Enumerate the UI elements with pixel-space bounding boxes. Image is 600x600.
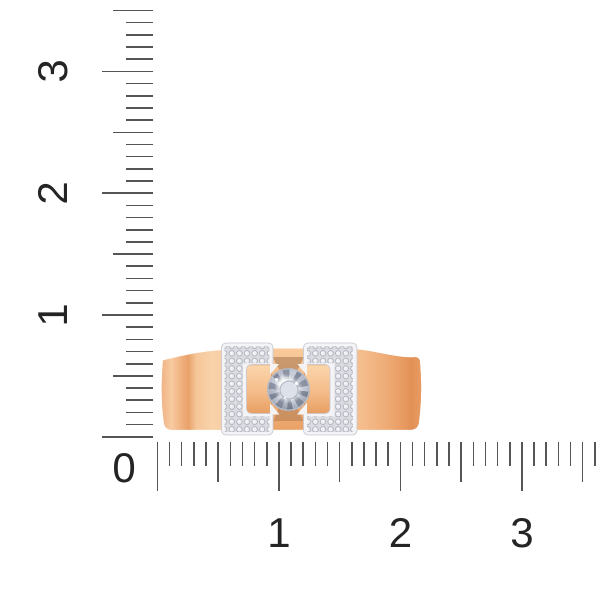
ruler-tick [558, 442, 560, 466]
ruler-tick [126, 326, 153, 328]
ruler-tick [113, 253, 153, 255]
horizontal-ruler-label-1: 1 [267, 512, 290, 554]
ruler-tick [126, 339, 153, 341]
ruler-tick [126, 229, 153, 231]
ruler-tick [126, 363, 153, 365]
ruler-tick [594, 442, 596, 466]
ruler-tick [497, 442, 499, 466]
ruler-tick [521, 442, 523, 491]
vertical-ruler-label-1: 1 [32, 303, 74, 326]
ruler-tick [126, 265, 153, 267]
ruler-tick [126, 46, 153, 48]
product-photo-canvas: 1230123 [0, 0, 600, 600]
ruler-tick [327, 442, 329, 466]
horizontal-ruler-label-2: 2 [389, 512, 412, 554]
ruler-tick [126, 351, 153, 353]
ruler-tick [126, 22, 153, 24]
ruler-tick [582, 442, 584, 482]
ruler-tick [126, 107, 153, 109]
diamond-sparkle [284, 397, 286, 399]
ruler-tick [126, 241, 153, 243]
ruler-tick [230, 442, 232, 466]
ruler-tick [126, 278, 153, 280]
ruler-tick [254, 442, 256, 466]
ruler-tick [126, 302, 153, 304]
ruler-tick [126, 205, 153, 207]
ruler-tick [113, 10, 153, 12]
ruler-tick [473, 442, 475, 466]
ruler-tick [157, 442, 159, 491]
center-diamond [267, 368, 310, 411]
ruler-tick [509, 442, 511, 466]
vertical-ruler-label-2: 2 [32, 182, 74, 205]
horizontal-ruler-label-3: 3 [510, 512, 533, 554]
ruler-tick [126, 180, 153, 182]
ruler-tick [113, 132, 153, 134]
ruler-tick [102, 71, 153, 73]
ruler-tick [169, 442, 171, 466]
ruler-tick [351, 442, 353, 466]
ruler-tick [436, 442, 438, 466]
ruler-tick [290, 442, 292, 466]
ruler-tick [102, 436, 153, 438]
ruler-tick [126, 156, 153, 158]
ruler-tick [126, 83, 153, 85]
diamond-sparkle [295, 382, 298, 385]
ruler-tick [339, 442, 341, 482]
ruler-tick [424, 442, 426, 466]
ruler-tick [126, 412, 153, 414]
ruler-tick [126, 387, 153, 389]
ruler-tick [113, 375, 153, 377]
ruler-tick [375, 442, 377, 466]
ruler-tick [278, 442, 280, 491]
ruler-tick [126, 58, 153, 60]
ruler-tick [217, 442, 219, 482]
ruler-tick [181, 442, 183, 466]
ruler-tick [242, 442, 244, 466]
ruler-tick [126, 168, 153, 170]
diamond-sparkle [275, 378, 278, 381]
ruler-tick [570, 442, 572, 466]
ruler-tick [533, 442, 535, 466]
ruler-tick [126, 144, 153, 146]
ruler-tick [126, 34, 153, 36]
ruler-tick [302, 442, 304, 466]
ruler-origin-label: 0 [112, 447, 135, 489]
ruler-tick [126, 290, 153, 292]
ruler-tick [448, 442, 450, 466]
ruler-tick [102, 192, 153, 194]
ruler-tick [102, 314, 153, 316]
ruler-tick [205, 442, 207, 466]
ruler-tick [400, 442, 402, 491]
ruler-tick [266, 442, 268, 466]
ruler-tick [315, 442, 317, 466]
ruler-tick [545, 442, 547, 466]
ruler-tick [363, 442, 365, 466]
ruler-tick [460, 442, 462, 482]
ruler-tick [126, 399, 153, 401]
ruler-tick [412, 442, 414, 466]
ruler-tick [126, 119, 153, 121]
ruler-tick [126, 217, 153, 219]
vertical-ruler-label-3: 3 [32, 60, 74, 83]
ruler-tick [485, 442, 487, 466]
ruler-tick [126, 424, 153, 426]
ruler-tick [193, 442, 195, 466]
ruler-tick [387, 442, 389, 466]
ruler-tick [126, 95, 153, 97]
